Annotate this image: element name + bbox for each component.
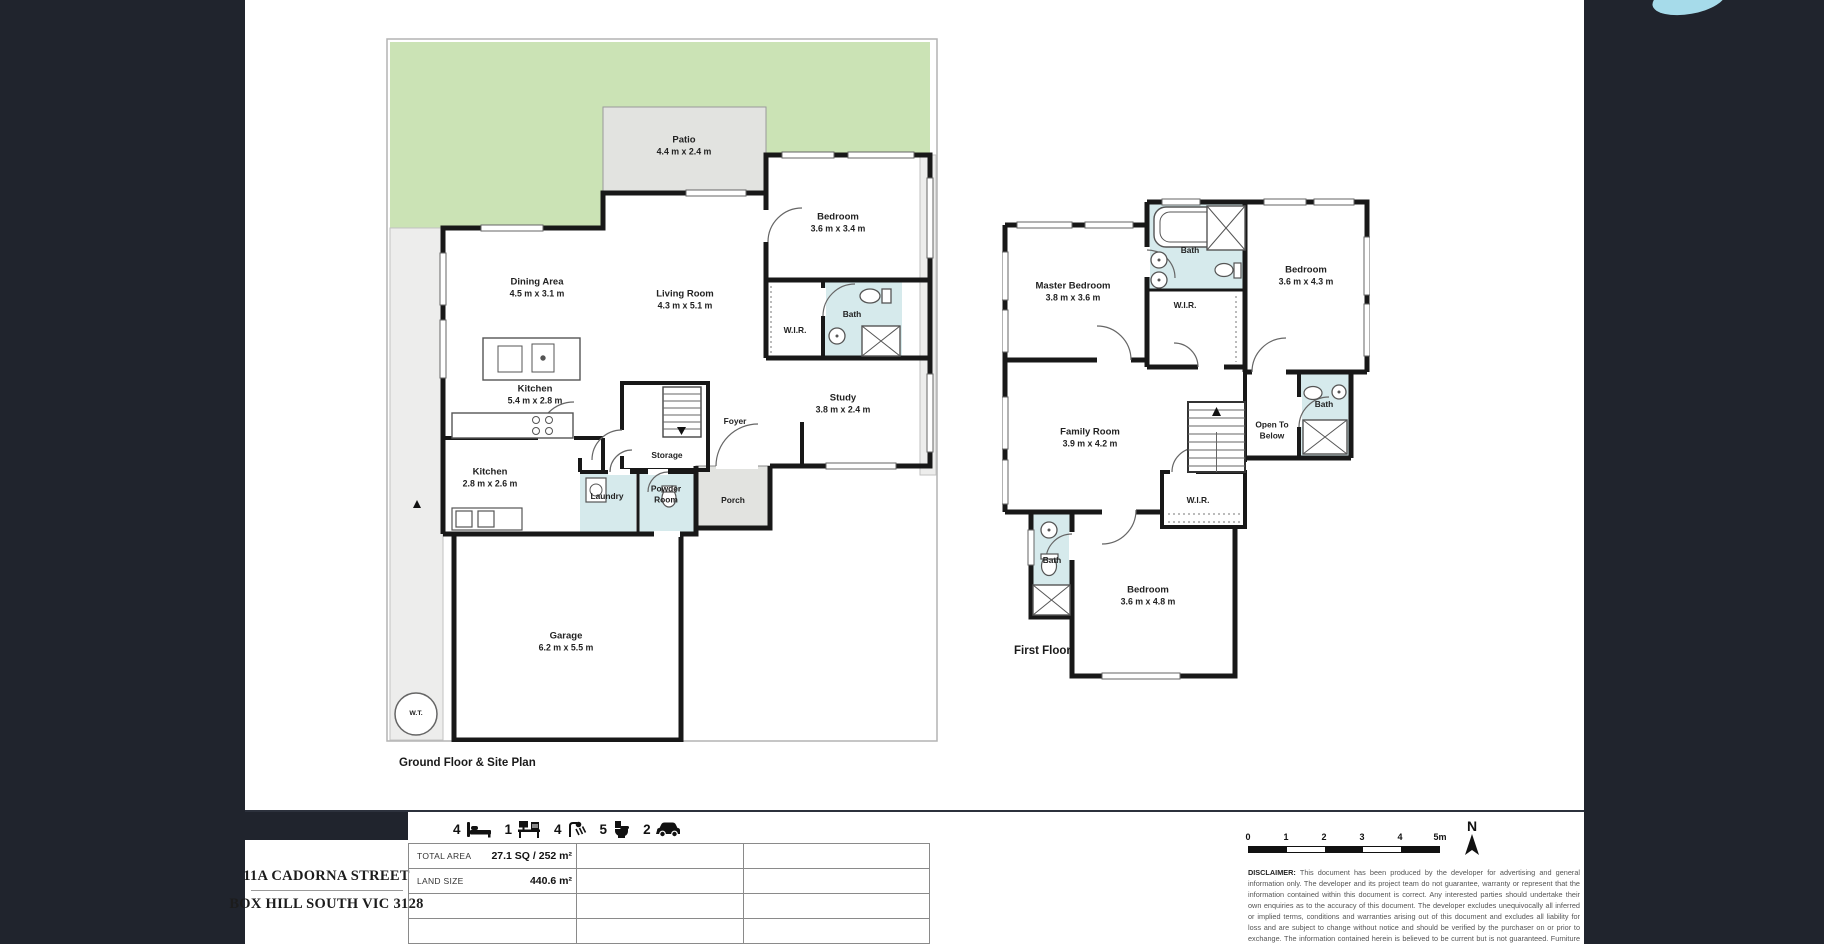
room-label: Bath — [1043, 555, 1062, 566]
footer-dark-notch — [245, 812, 408, 840]
room-label: Kitchen5.4 m x 2.8 m — [508, 384, 563, 407]
table-border — [929, 843, 930, 944]
room-label: Kitchen2.8 m x 2.6 m — [463, 467, 518, 490]
room-label: W.I.R. — [784, 325, 807, 336]
floorplan-document: Patio4.4 m x 2.4 mDining Area4.5 m x 3.1… — [245, 0, 1584, 944]
address-block: 11A CADORNA STREET BOX HILL SOUTH VIC 31… — [245, 840, 408, 940]
room-label: Family Room3.9 m x 4.2 m — [1060, 427, 1120, 450]
features-row: 4 1 — [453, 815, 681, 843]
room-label: W.I.R. — [1174, 300, 1197, 311]
room-label: Porch — [721, 495, 745, 506]
room-label: Laundry — [590, 491, 623, 502]
room-label: W.I.R. — [1187, 495, 1210, 506]
room-label: Storage — [651, 450, 682, 461]
desk-icon — [517, 821, 541, 838]
scale-bar: 0 1 2 3 4 5m — [1248, 832, 1448, 853]
stats-table: 4 1 — [408, 812, 930, 944]
room-label: Master Bedroom3.8 m x 3.6 m — [1036, 281, 1111, 304]
footer-panel: 11A CADORNA STREET BOX HILL SOUTH VIC 31… — [245, 810, 1584, 944]
stat-row-total-area: TOTAL AREA 27.1 SQ / 252 m² — [408, 843, 930, 868]
room-label: Bath — [843, 309, 862, 320]
feature-toilets: 5 — [600, 821, 631, 838]
room-label: Bedroom3.6 m x 4.3 m — [1279, 265, 1334, 288]
room-label: Bath — [1315, 399, 1334, 410]
room-label: Study3.8 m x 2.4 m — [816, 393, 871, 416]
scale-tick: 3 — [1359, 832, 1364, 842]
room-label: Dining Area4.5 m x 3.1 m — [510, 277, 565, 300]
room-label: Bath — [1181, 245, 1200, 256]
north-arrow-icon — [1463, 834, 1481, 856]
first-plan-caption: First Floor — [1014, 645, 1071, 657]
scale-tick: 0 — [1245, 832, 1250, 842]
feature-cars: 2 — [643, 821, 681, 838]
room-label: Bedroom3.6 m x 4.8 m — [1121, 585, 1176, 608]
screen: Patio4.4 m x 2.4 mDining Area4.5 m x 3.1… — [0, 0, 1824, 944]
ground-plan-caption: Ground Floor & Site Plan — [399, 757, 536, 769]
stat-row-empty — [408, 893, 930, 918]
scale-tick: 4 — [1397, 832, 1402, 842]
ground-room-labels: Patio4.4 m x 2.4 mDining Area4.5 m x 3.1… — [386, 38, 938, 742]
stat-row-empty — [408, 918, 930, 944]
feature-beds: 4 — [453, 821, 492, 838]
scale-tick: 5m — [1433, 832, 1446, 842]
room-label: Patio4.4 m x 2.4 m — [657, 135, 712, 158]
room-label: Foyer — [724, 416, 747, 427]
scale-tick-labels: 0 1 2 3 4 5m — [1248, 832, 1448, 844]
scale-bar-segments — [1248, 846, 1440, 853]
north-label: N — [1457, 818, 1487, 834]
room-label: W.T. — [409, 710, 422, 718]
address-line-2: BOX HILL SOUTH VIC 3128 — [229, 896, 423, 913]
scale-tick: 2 — [1321, 832, 1326, 842]
first-floor-plan: Master Bedroom3.8 m x 3.6 mBathW.I.R.Bed… — [1002, 192, 1370, 686]
address-line-1: 11A CADORNA STREET — [243, 868, 410, 885]
room-label: Open To Below — [1255, 420, 1288, 441]
feature-study: 1 — [505, 821, 542, 838]
bed-icon — [466, 821, 492, 838]
room-label: Bedroom3.6 m x 3.4 m — [811, 212, 866, 235]
address-divider — [251, 890, 403, 891]
feature-baths: 4 — [554, 821, 587, 838]
north-indicator: N — [1457, 818, 1487, 861]
first-room-labels: Master Bedroom3.8 m x 3.6 mBathW.I.R.Bed… — [1002, 192, 1370, 686]
disclaimer-label: DISCLAIMER: — [1248, 868, 1296, 877]
scale-tick: 1 — [1283, 832, 1288, 842]
disclaimer-text: DISCLAIMER: This document has been produ… — [1248, 868, 1580, 944]
logo-swoosh — [1650, 0, 1728, 20]
table-border — [576, 843, 577, 944]
ground-floor-plan: Patio4.4 m x 2.4 mDining Area4.5 m x 3.1… — [386, 38, 938, 742]
car-icon — [656, 821, 681, 838]
table-border — [743, 843, 744, 944]
stat-row-land-size: LAND SIZE 440.6 m² — [408, 868, 930, 893]
room-label: Powder Room — [651, 484, 681, 505]
room-label: Living Room4.3 m x 5.1 m — [656, 289, 714, 312]
shower-icon — [567, 821, 587, 838]
toilet-icon — [612, 821, 630, 838]
table-border — [408, 843, 409, 944]
room-label: Garage6.2 m x 5.5 m — [539, 631, 594, 654]
